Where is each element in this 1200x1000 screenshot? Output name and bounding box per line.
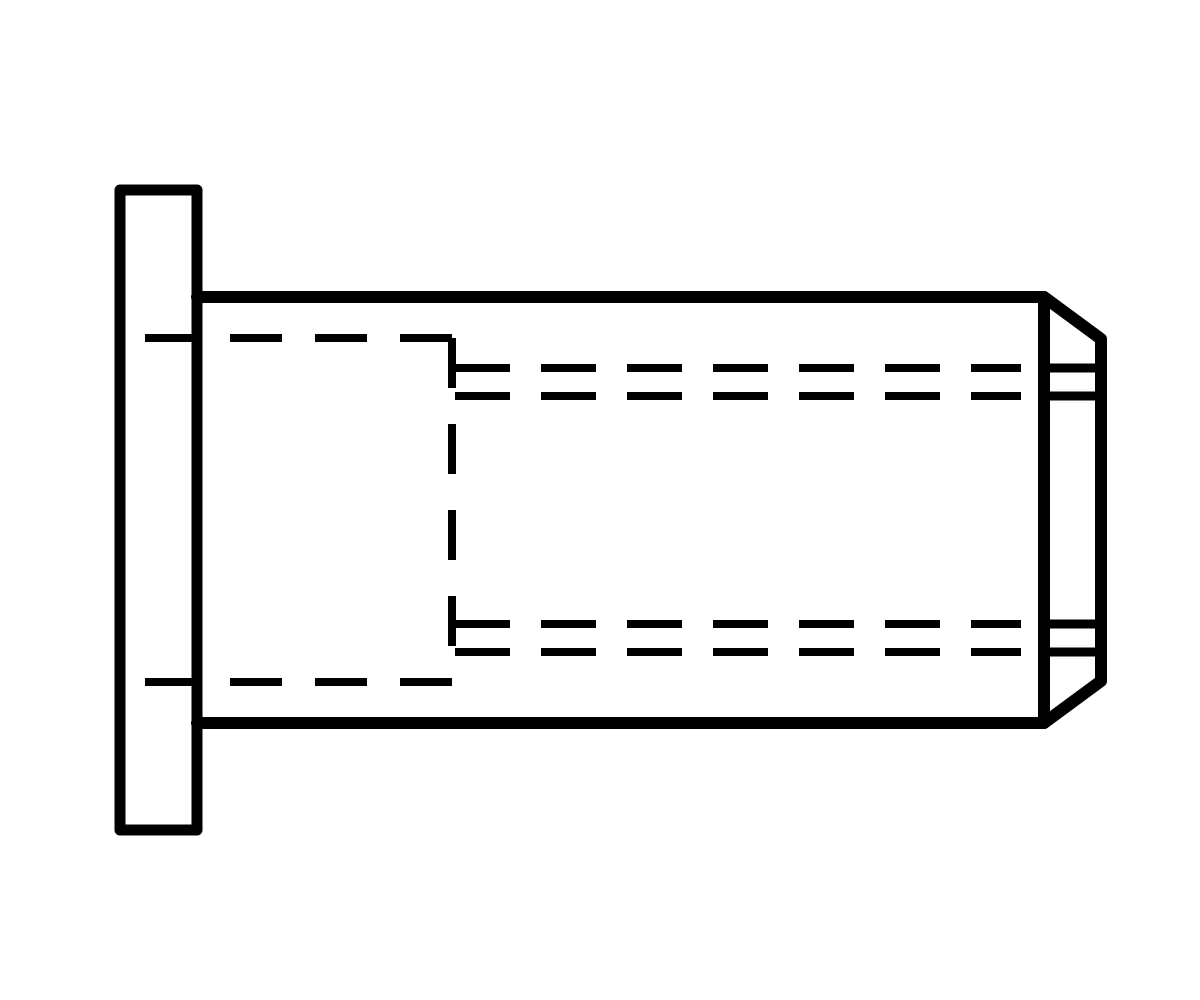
hidden-lines-dashed: [145, 338, 1021, 682]
rivet-nut-drawing-canvas: [0, 0, 1200, 1000]
thread-runout-solid: [1044, 368, 1098, 652]
screenshot-root: [0, 0, 1200, 1000]
outer-outline-solid: [120, 190, 1101, 830]
rivet-nut-technical-drawing: [0, 0, 1200, 1000]
flange-outline: [120, 190, 197, 830]
shank-outline: [197, 297, 1101, 723]
